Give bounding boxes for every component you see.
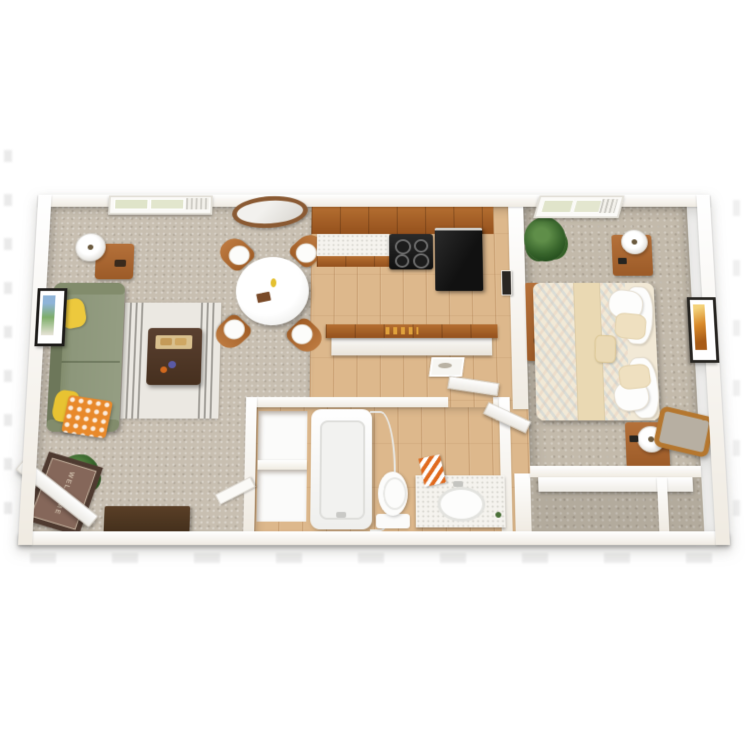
burner [413, 253, 429, 268]
nightstand-lamp [621, 230, 649, 255]
kitchen-cabinet-front [317, 256, 390, 267]
vanity-faucet [453, 481, 463, 487]
tub-faucet [336, 512, 346, 518]
decor-ball-blue [168, 361, 176, 368]
floor-plan-scene: WELCOME [0, 0, 750, 750]
nightstand-clock [629, 435, 638, 442]
linen-shelf-bottom [256, 470, 306, 522]
duvet-foot-pattern [533, 283, 578, 421]
window-blinds [599, 199, 618, 213]
bedroom-window [533, 195, 624, 218]
range-stove [389, 234, 433, 269]
closet-shelf [538, 477, 693, 491]
art-image [41, 295, 56, 335]
toilet-bowl [378, 472, 408, 516]
lamp-finial [88, 245, 94, 250]
window-pane [573, 200, 603, 213]
art-image-orange [693, 304, 707, 349]
toilet-seat [383, 477, 407, 510]
closet-front-wall [530, 466, 701, 477]
table-book [256, 292, 271, 303]
bathroom-wall-north-left [246, 397, 448, 407]
living-wall-art [34, 288, 67, 346]
refrigerator [435, 228, 484, 291]
edge-artifact-bottom [30, 553, 720, 563]
bed-sham-cream [617, 363, 652, 390]
table-flowers [271, 278, 277, 287]
hall-wall-frame [501, 270, 512, 295]
linen-shelf-divider [257, 460, 306, 470]
edge-artifact-right [733, 200, 740, 540]
kitchen-counter [317, 234, 389, 256]
bedroom-wall-lower [514, 473, 531, 532]
orange-patterned-throw [61, 395, 113, 439]
coffee-table-tray [155, 335, 192, 349]
window-pane [150, 199, 184, 209]
peninsula-picture-frame [429, 357, 465, 376]
decor-ball-orange [160, 366, 167, 372]
vanity-plant-sprig [495, 512, 501, 518]
toilet [374, 472, 412, 530]
frame-sketch [438, 363, 452, 369]
ac-unit-grille [186, 198, 209, 209]
nightstand-north [611, 235, 653, 276]
bathtub [310, 409, 372, 529]
tray-item [160, 338, 172, 345]
burner [395, 239, 411, 254]
peninsula-countertop [326, 324, 498, 338]
nightstand-clock [618, 258, 627, 264]
bed [533, 283, 660, 421]
tub-basin [319, 420, 365, 519]
lamp-finial [631, 239, 637, 244]
bed-accent-pillow [594, 335, 616, 364]
rug-stripes-left [125, 303, 145, 419]
coffee-table [146, 328, 202, 385]
floor-plan-3d: WELCOME [18, 195, 730, 545]
window-pane [540, 200, 574, 213]
side-table-item [114, 260, 126, 267]
burner [395, 254, 409, 267]
linen-shelf-top [258, 411, 308, 460]
vanity-sink [437, 487, 485, 522]
sofa-cushion-line [62, 361, 120, 363]
living-window-ac [108, 195, 213, 214]
media-console [104, 506, 191, 532]
edge-artifact-left [4, 150, 12, 546]
bedroom-plant [524, 217, 567, 261]
toilet-tank [376, 514, 410, 529]
bar-items [386, 327, 419, 334]
burner [414, 239, 428, 252]
window-pane [114, 199, 148, 209]
tray-item [175, 338, 187, 345]
bedroom-wall-art [687, 297, 720, 363]
exterior-wall-bottom [18, 531, 730, 545]
bed-sham-cream [614, 312, 647, 340]
